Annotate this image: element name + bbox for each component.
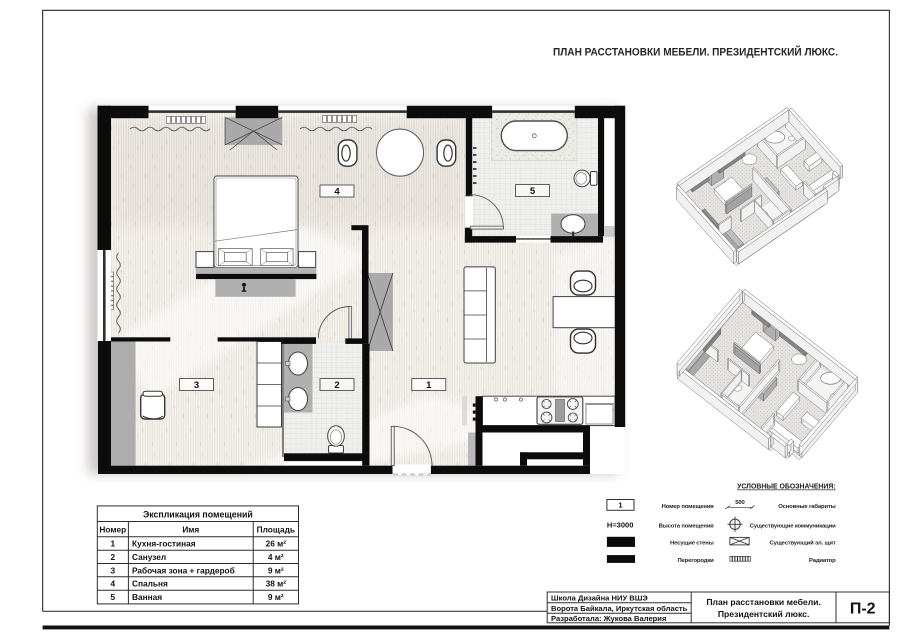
svg-text:Существующий эл. щит: Существующий эл. щит <box>770 540 836 547</box>
svg-text:9 м²: 9 м² <box>268 565 284 575</box>
svg-text:Кухня-гостиная: Кухня-гостиная <box>132 539 196 549</box>
svg-text:38 м²: 38 м² <box>266 579 287 589</box>
svg-text:2: 2 <box>334 380 339 391</box>
svg-text:Разработала: Жукова Валерия: Разработала: Жукова Валерия <box>551 614 666 623</box>
svg-text:Площадь: Площадь <box>257 525 295 535</box>
svg-text:Школа Дизайна НИУ ВШЭ: Школа Дизайна НИУ ВШЭ <box>551 593 648 602</box>
svg-text:3: 3 <box>194 380 199 391</box>
svg-text:Ванная: Ванная <box>132 592 162 602</box>
svg-text:1: 1 <box>618 501 622 510</box>
svg-text:План расстановки мебели.: План расстановки мебели. <box>706 597 821 607</box>
svg-text:Н=3000: Н=3000 <box>607 520 633 529</box>
svg-text:Основные габариты: Основные габариты <box>778 503 835 510</box>
svg-text:Высота помещения: Высота помещения <box>659 523 715 529</box>
svg-text:Спальня: Спальня <box>132 579 168 589</box>
svg-text:Имя: Имя <box>182 525 199 535</box>
svg-text:Рабочая зона + гардероб: Рабочая зона + гардероб <box>132 565 235 575</box>
svg-text:Номер: Номер <box>99 525 126 535</box>
svg-text:Перегородки: Перегородки <box>677 558 714 564</box>
svg-text:Президентский люкс.: Президентский люкс. <box>718 609 809 619</box>
svg-text:Экспликация помещений: Экспликация помещений <box>143 509 253 519</box>
svg-text:П-2: П-2 <box>850 600 876 617</box>
svg-text:УСЛОВНЫЕ ОБОЗНАЧЕНИЯ:: УСЛОВНЫЕ ОБОЗНАЧЕНИЯ: <box>737 484 836 491</box>
svg-text:5: 5 <box>530 186 536 197</box>
svg-text:3: 3 <box>110 565 115 575</box>
svg-text:5: 5 <box>110 592 115 602</box>
svg-text:Существующие коммуникации: Существующие коммуникации <box>750 523 836 529</box>
svg-text:1: 1 <box>110 539 115 549</box>
svg-text:2: 2 <box>110 552 115 562</box>
svg-text:Несущие стены: Несущие стены <box>670 541 714 547</box>
svg-text:ПЛАН РАССТАНОВКИ МЕБЕЛИ. ПРЕЗИ: ПЛАН РАССТАНОВКИ МЕБЕЛИ. ПРЕЗИДЕНТСКИЙ Л… <box>553 46 838 59</box>
svg-text:4: 4 <box>334 187 340 198</box>
svg-text:500: 500 <box>735 500 745 506</box>
svg-text:1: 1 <box>426 380 432 391</box>
svg-text:Радиатор: Радиатор <box>809 558 836 564</box>
svg-text:4: 4 <box>110 579 115 589</box>
svg-text:26 м²: 26 м² <box>266 539 287 549</box>
svg-text:Номер помещения: Номер помещения <box>662 504 715 510</box>
svg-text:Ворота Байкала, Иркутская обла: Ворота Байкала, Иркутская область <box>551 604 688 613</box>
svg-text:9 м²: 9 м² <box>268 592 284 602</box>
svg-text:Санузел: Санузел <box>132 552 166 562</box>
svg-text:4 м²: 4 м² <box>268 552 284 562</box>
